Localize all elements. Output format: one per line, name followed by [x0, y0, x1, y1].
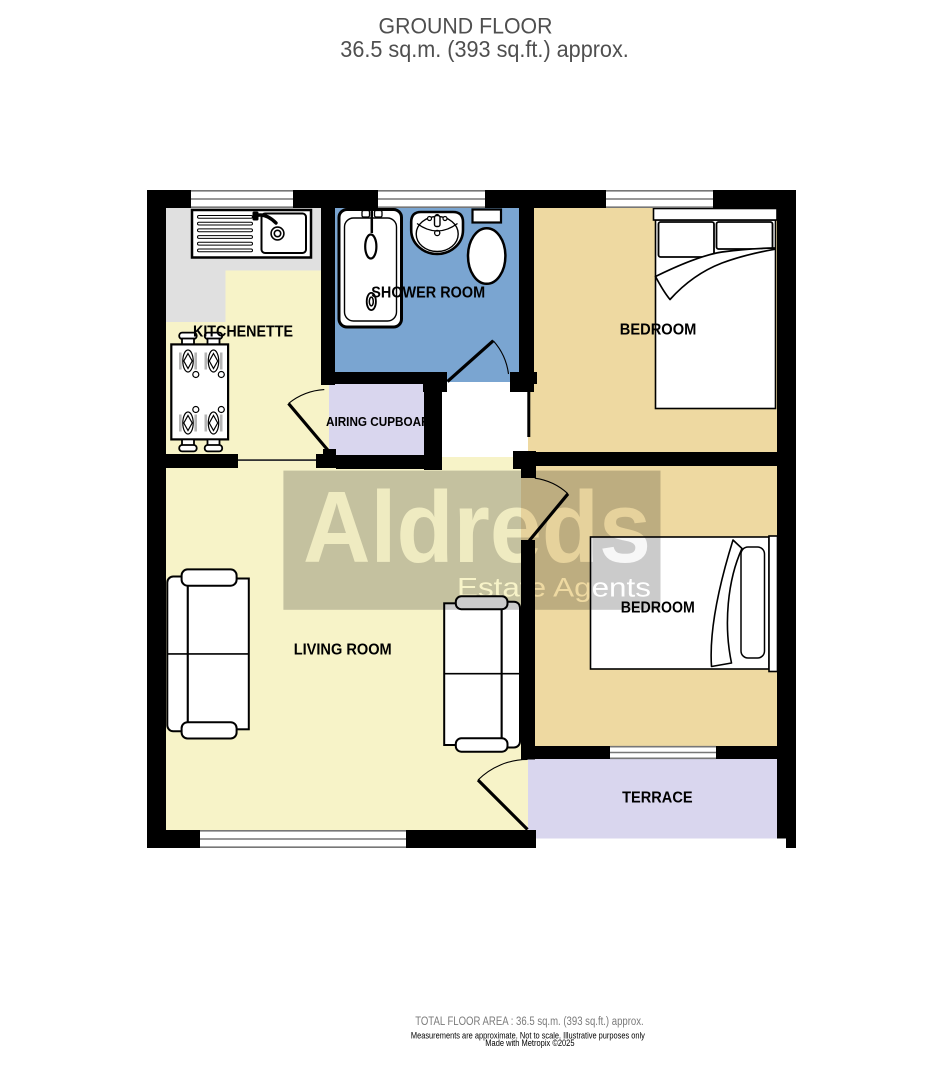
svg-text:SHOWER ROOM: SHOWER ROOM: [371, 285, 485, 302]
svg-text:Aldreds: Aldreds: [303, 472, 651, 584]
svg-text:36.5 sq.m. (393 sq.ft.) approx: 36.5 sq.m. (393 sq.ft.) approx.: [340, 36, 629, 62]
svg-text:LIVING ROOM: LIVING ROOM: [294, 642, 392, 659]
svg-text:TERRACE: TERRACE: [622, 790, 693, 807]
svg-text:BEDROOM: BEDROOM: [621, 600, 695, 617]
svg-text:BEDROOM: BEDROOM: [620, 322, 697, 339]
svg-text:Made with Metropix ©2025: Made with Metropix ©2025: [485, 1038, 574, 1048]
svg-text:Estate Agents: Estate Agents: [457, 573, 651, 603]
svg-text:KITCHENETTE: KITCHENETTE: [193, 323, 293, 340]
svg-text:GROUND FLOOR: GROUND FLOOR: [379, 14, 553, 39]
svg-text:TOTAL FLOOR AREA : 36.5 sq.m.: TOTAL FLOOR AREA : 36.5 sq.m. (393 sq.ft…: [415, 1016, 644, 1028]
svg-text:AIRING CUPBOARD: AIRING CUPBOARD: [326, 414, 438, 429]
